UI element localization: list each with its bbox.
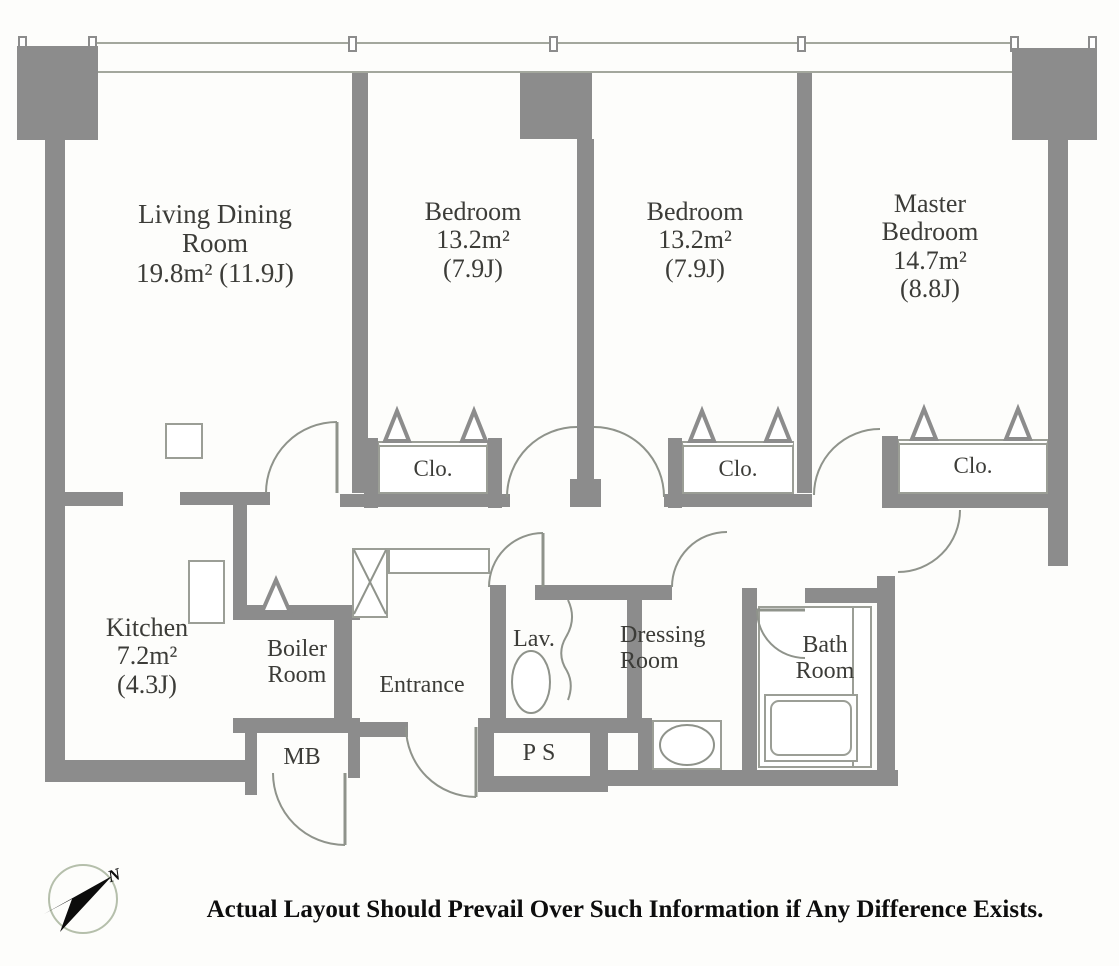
room-label-living: Living Dining Room 19.8m² (11.9J)	[90, 200, 340, 288]
room-name: Dressing	[620, 622, 738, 648]
room-area: 7.2m²	[62, 642, 232, 670]
room-label-entrance: Entrance	[352, 672, 492, 698]
closet3-folding-door-icon	[1006, 409, 1030, 439]
bedroom2-door-arc	[594, 427, 664, 497]
master-hall-door-arc	[898, 510, 960, 572]
room-area: (4.3J)	[62, 671, 232, 699]
boiler-folding-door-icon	[262, 580, 290, 612]
room-name: MB	[252, 744, 352, 770]
compass-icon: N	[44, 864, 124, 933]
room-area: 13.2m²	[600, 226, 790, 254]
room-name: Living Dining	[90, 200, 340, 229]
living-door-arc	[266, 422, 337, 493]
room-name: Room	[620, 648, 738, 674]
compass-needle-icon	[44, 876, 112, 932]
closet2-label: Clo.	[682, 456, 794, 481]
bedroom1-door-arc	[507, 427, 577, 497]
toilet-icon	[512, 651, 550, 713]
room-name: Bedroom	[378, 198, 568, 226]
room-area: 19.8m² (11.9J)	[90, 259, 340, 288]
lavatory-door-arc	[489, 533, 543, 587]
room-label-dressing: Dressing Room	[620, 622, 738, 674]
room-label-master: Master Bedroom 14.7m² (8.8J)	[845, 190, 1015, 303]
meter-box-door-arc	[273, 773, 345, 845]
closet3-label: Clo.	[898, 453, 1048, 478]
closet1-folding-door-icon	[385, 411, 409, 441]
closet3-folding-door-icon	[912, 409, 936, 439]
room-label-pipe-space: PS	[494, 740, 590, 766]
room-label-bedroom2: Bedroom 13.2m² (7.9J)	[600, 198, 790, 283]
dressing-door-arc	[672, 532, 727, 587]
room-name: PS	[494, 740, 590, 766]
room-area: (8.8J)	[845, 275, 1015, 303]
washbasin-icon	[660, 725, 714, 765]
floor-plan: N Living Dining Room 19.8m² (11.9J) Bedr…	[0, 0, 1119, 966]
symbol-overlay: N	[0, 0, 1119, 966]
compass-north-label: N	[104, 864, 123, 886]
room-name: Kitchen	[62, 614, 232, 642]
closet2-folding-door-icon	[766, 411, 790, 441]
room-name: Room	[247, 662, 347, 688]
room-name: Bedroom	[845, 218, 1015, 246]
room-label-bath: Bath Room	[782, 632, 868, 684]
room-name: Bedroom	[600, 198, 790, 226]
closet1-label: Clo.	[378, 456, 488, 481]
room-area: 13.2m²	[378, 226, 568, 254]
room-name: Clo.	[378, 456, 488, 481]
disclaimer-text: Actual Layout Should Prevail Over Such I…	[150, 896, 1100, 924]
room-name: Clo.	[898, 453, 1048, 478]
entrance-door-arc	[406, 727, 476, 797]
room-name: Room	[90, 229, 340, 258]
room-area: (7.9J)	[378, 255, 568, 283]
room-label-boiler: Boiler Room	[247, 636, 347, 688]
room-name: Bath	[782, 632, 868, 658]
room-name: Lav.	[498, 626, 570, 652]
closet1-folding-door-icon	[462, 411, 486, 441]
room-label-meter-box: MB	[252, 744, 352, 770]
room-name: Room	[782, 658, 868, 684]
room-name: Master	[845, 190, 1015, 218]
room-name: Boiler	[247, 636, 347, 662]
room-name: Clo.	[682, 456, 794, 481]
closet2-folding-door-icon	[690, 411, 714, 441]
room-area: (7.9J)	[600, 255, 790, 283]
room-label-kitchen: Kitchen 7.2m² (4.3J)	[62, 614, 232, 699]
master-door-arc	[814, 429, 880, 495]
room-area: 14.7m²	[845, 247, 1015, 275]
room-label-lavatory: Lav.	[498, 626, 570, 652]
room-label-bedroom1: Bedroom 13.2m² (7.9J)	[378, 198, 568, 283]
room-name: Entrance	[352, 672, 492, 698]
